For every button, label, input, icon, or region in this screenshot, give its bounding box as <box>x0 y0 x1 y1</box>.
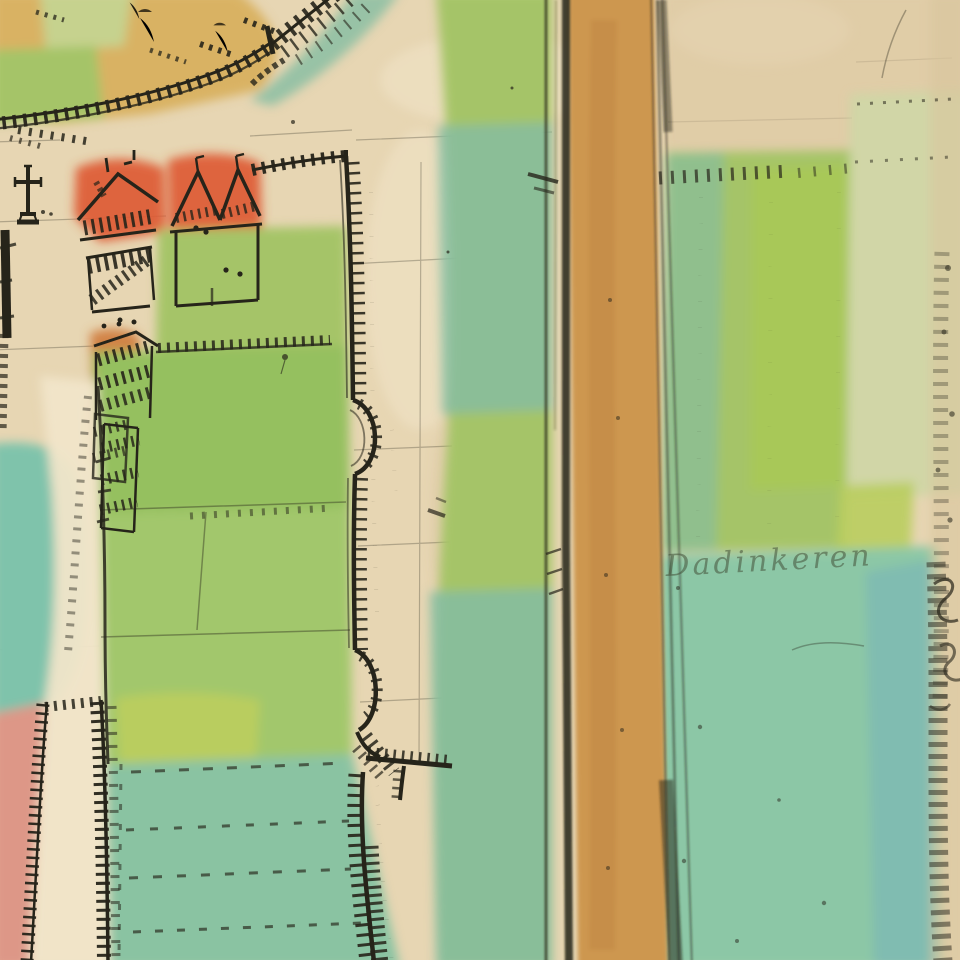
wall-east-middle <box>354 474 355 650</box>
lime-patch-wash <box>116 692 260 766</box>
verge-teal-wash-upper <box>438 122 552 414</box>
road-right-fuzz <box>662 0 668 132</box>
inner-field-wash <box>94 346 350 514</box>
pale-green-patch-wash <box>40 0 132 52</box>
manuscript-map-canvas: Dadinkeren <box>0 0 960 960</box>
road-left-band <box>565 0 569 960</box>
road-left-faint-line <box>555 0 556 430</box>
right-field-bright-wash <box>750 164 848 490</box>
red-roof-wash-2 <box>168 154 262 236</box>
verge-teal-wash-lower <box>430 588 552 960</box>
yard-green-wash <box>156 226 348 354</box>
road-tone-streak <box>602 20 604 950</box>
right-field-teal-streak <box>662 152 724 552</box>
road-surface <box>568 0 668 960</box>
road-surface-group <box>568 0 668 960</box>
blue-streak-wash <box>866 560 938 960</box>
